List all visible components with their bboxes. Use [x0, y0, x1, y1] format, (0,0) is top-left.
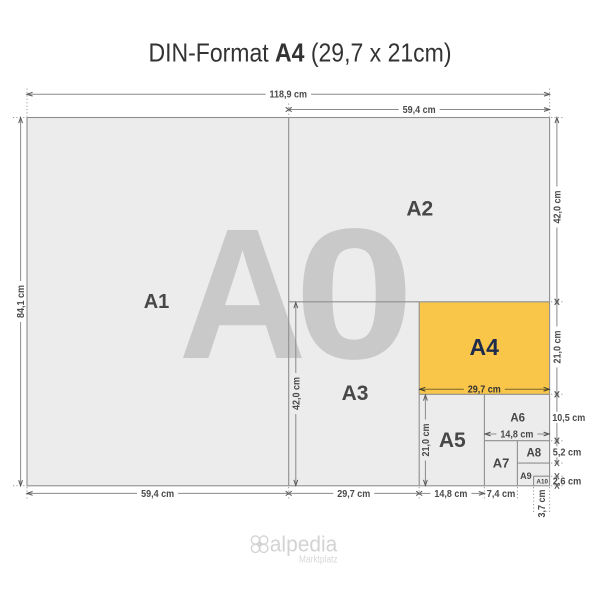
svg-text:21,0 cm: 21,0 cm	[552, 330, 563, 363]
svg-text:A9: A9	[520, 471, 532, 481]
svg-text:3,7 cm: 3,7 cm	[537, 489, 548, 517]
svg-text:A5: A5	[439, 429, 466, 452]
svg-text:A6: A6	[510, 412, 525, 424]
svg-text:Marktplatz: Marktplatz	[299, 555, 338, 566]
svg-text:10,5 cm: 10,5 cm	[552, 413, 585, 424]
svg-text:0: 0	[294, 191, 414, 398]
svg-text:alpedia: alpedia	[270, 532, 338, 557]
svg-text:A: A	[179, 191, 307, 398]
svg-text:DIN-Format A4 (29,7 x 21cm): DIN-Format A4 (29,7 x 21cm)	[148, 39, 451, 68]
svg-text:84,1 cm: 84,1 cm	[16, 285, 27, 318]
svg-text:118,9 cm: 118,9 cm	[270, 90, 308, 101]
svg-text:7,4 cm: 7,4 cm	[487, 489, 516, 500]
svg-text:A7: A7	[493, 456, 510, 471]
svg-text:59,4 cm: 59,4 cm	[141, 489, 174, 500]
svg-text:A4: A4	[469, 334, 499, 360]
svg-text:A10: A10	[536, 479, 548, 486]
svg-text:42,0 cm: 42,0 cm	[291, 377, 302, 410]
svg-text:A2: A2	[406, 198, 433, 221]
svg-text:5,2 cm: 5,2 cm	[553, 447, 582, 458]
svg-text:29,7 cm: 29,7 cm	[468, 385, 501, 396]
svg-text:A3: A3	[342, 382, 369, 405]
svg-text:29,7 cm: 29,7 cm	[337, 489, 370, 500]
svg-text:21,0 cm: 21,0 cm	[421, 423, 432, 456]
svg-text:42,0 cm: 42,0 cm	[552, 190, 563, 223]
svg-text:A8: A8	[526, 447, 541, 459]
svg-text:59,4 cm: 59,4 cm	[403, 105, 436, 116]
svg-text:14,8 cm: 14,8 cm	[434, 489, 467, 500]
svg-text:14,8 cm: 14,8 cm	[500, 430, 533, 441]
svg-text:A1: A1	[144, 291, 170, 313]
